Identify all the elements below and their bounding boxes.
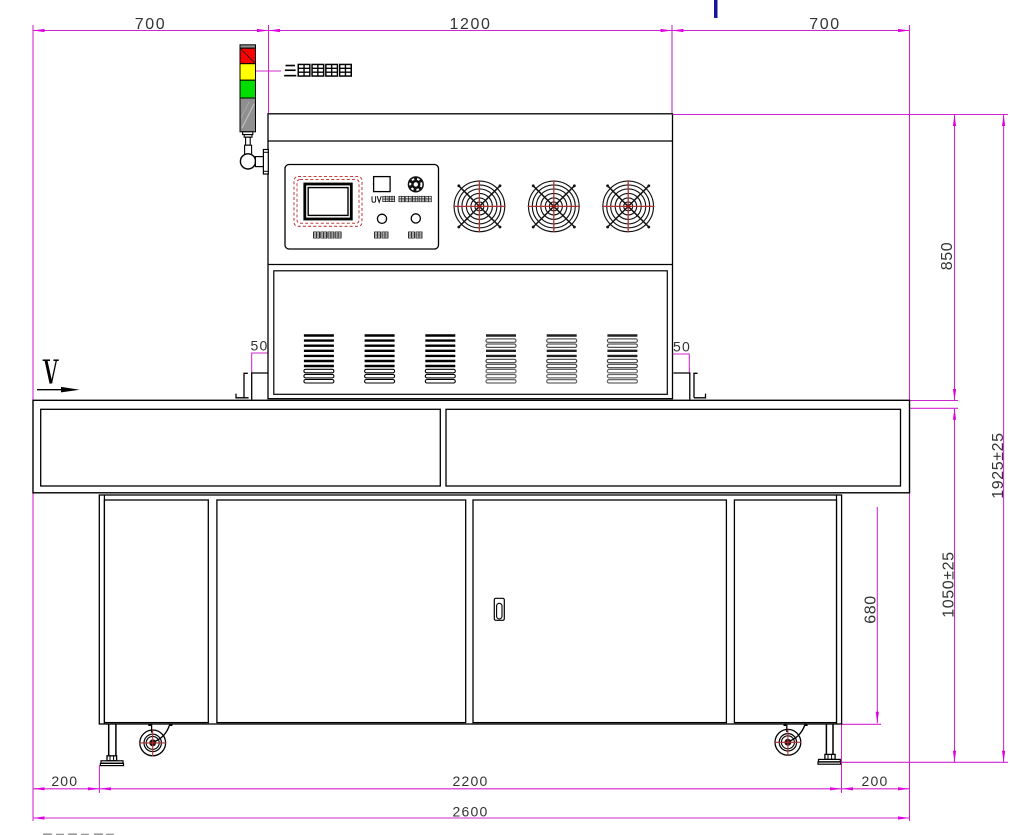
svg-text:50: 50 bbox=[673, 339, 691, 355]
svg-text:50: 50 bbox=[251, 338, 269, 354]
svg-text:680: 680 bbox=[862, 595, 879, 624]
svg-text:200: 200 bbox=[862, 773, 889, 789]
svg-text:2200: 2200 bbox=[453, 773, 489, 789]
svg-text:1925±25: 1925±25 bbox=[990, 432, 1007, 498]
svg-text:700: 700 bbox=[809, 16, 841, 33]
svg-text:700: 700 bbox=[135, 16, 167, 33]
svg-text:1050±25: 1050±25 bbox=[940, 551, 957, 617]
svg-text:2600: 2600 bbox=[453, 803, 489, 819]
svg-text:200: 200 bbox=[51, 773, 78, 789]
svg-text:850: 850 bbox=[939, 242, 956, 271]
svg-text:1200: 1200 bbox=[450, 16, 492, 33]
